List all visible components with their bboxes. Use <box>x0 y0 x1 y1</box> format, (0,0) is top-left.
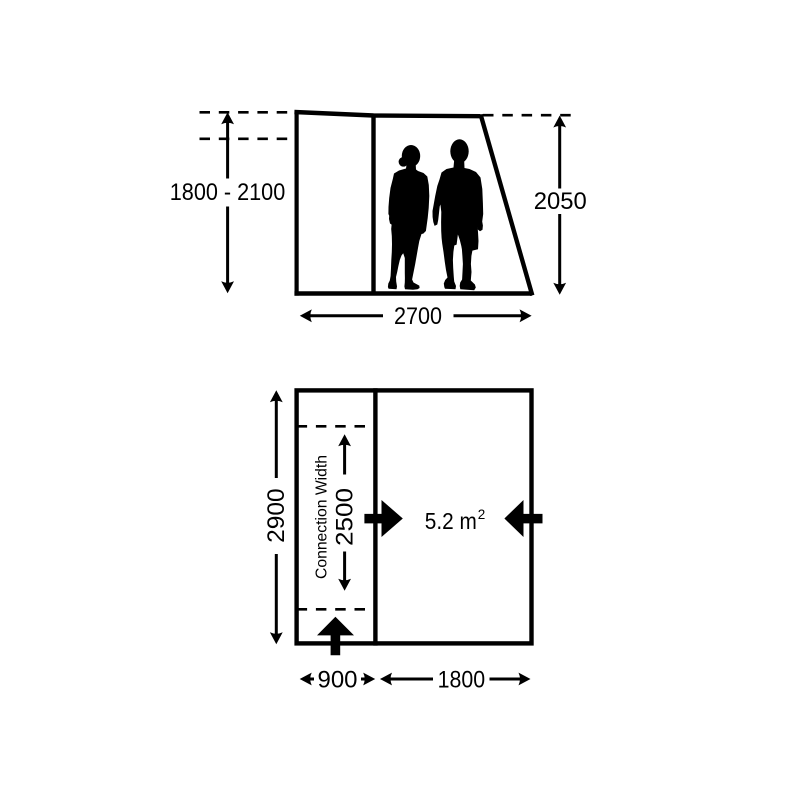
svg-text:2900: 2900 <box>263 488 290 543</box>
svg-text:900: 900 <box>318 666 358 693</box>
svg-text:2050: 2050 <box>534 188 587 215</box>
svg-text:5.2 m: 5.2 m <box>425 508 477 534</box>
svg-text:2: 2 <box>478 507 486 522</box>
svg-text:2700: 2700 <box>394 303 442 330</box>
svg-text:1800 - 2100: 1800 - 2100 <box>170 179 286 206</box>
svg-text:Connection Width: Connection Width <box>313 455 330 579</box>
svg-text:2500: 2500 <box>331 488 358 546</box>
svg-text:1800: 1800 <box>438 666 486 693</box>
